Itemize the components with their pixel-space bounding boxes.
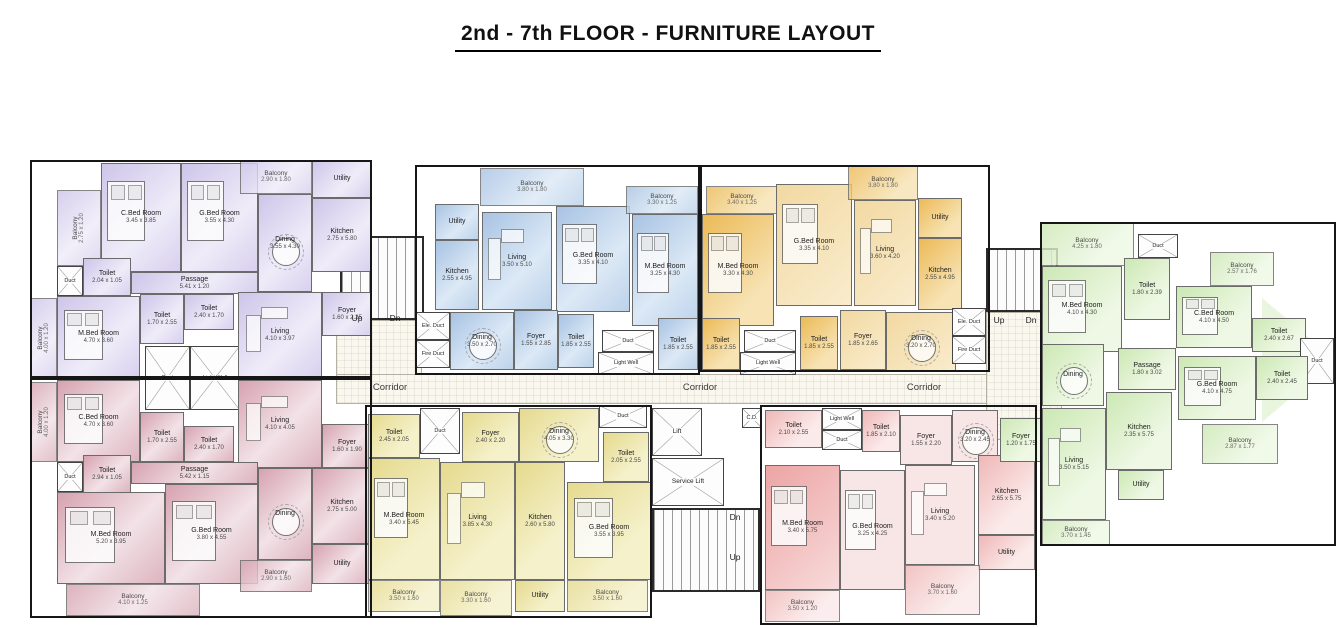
apt-center-blue-toilet: Toilet1.85 x 2.55 [558,314,594,368]
apt-center-orange-duct: Duct [744,330,796,352]
apt-center-orange-dining: Dining3.20 x 2.70 [886,312,956,372]
sofa-icon [488,238,501,280]
apt-center-blue-g-bed-room: G.Bed Room3.35 x 4.10 [556,206,630,312]
apt-center-blue-light-well: Light Well [598,352,654,375]
circulation-up: Up [986,314,1012,328]
apt-center-orange-living: Living3.60 x 4.20 [854,200,916,306]
bed-icon [65,507,115,563]
apt-bottom-pink-foyer: Foyer1.55 x 2.20 [900,415,952,465]
dining-table-icon [546,426,574,454]
sofa-icon [860,228,872,274]
apt-bottom-left-dining: Dining [258,468,312,560]
apt-bottom-left-toilet: Toilet2.40 x 1.70 [184,426,234,462]
bed-icon [708,233,742,293]
apt-bottom-yellow-duct: Duct [599,405,647,428]
apt-right-green-kitchen: Kitchen2.35 x 5.75 [1106,392,1172,470]
apt-top-left-utility: Utility [312,160,372,198]
dining-table-icon [908,334,936,362]
bed-icon [845,490,876,550]
apt-bottom-left-passage: Passage5.42 x 1.15 [131,462,258,484]
dining-table-icon [469,332,497,360]
apt-center-orange-kitchen: Kitchen2.55 x 4.95 [918,238,962,310]
circulation-duct: Duct [145,346,190,410]
dining-table-icon [1060,367,1088,395]
apt-center-blue-kitchen: Kitchen2.55 x 4.95 [435,240,479,310]
apt-top-left-kitchen: Kitchen2.75 x 5.80 [312,198,372,272]
apt-bottom-pink-duct: Duct [822,430,862,450]
apt-center-orange-toilet: Toilet1.85 x 2.55 [702,318,740,370]
apt-top-left-balcony: Balcony2.75 x 1.20 [57,190,101,266]
circulation-light-well: Light Well [190,346,240,410]
apt-top-left-m-bed-room: M.Bed Room4.70 x 3.60 [57,296,140,378]
floor-plan: CorridorCorridorCorridorUpDnUpDnLiftServ… [0,0,1336,628]
sofa-icon [447,493,461,544]
apt-right-green-balcony: Balcony4.25 x 1.80 [1040,222,1134,266]
circulation-corridor: Corridor [886,378,962,398]
bed-icon [1184,367,1221,406]
apt-top-left-balcony: Balcony4.00 x 1.20 [30,298,57,378]
apt-center-orange-fire-duct: Fire Duct [952,336,986,364]
bed-icon [64,310,103,360]
apt-right-green-balcony: Balcony3.70 x 1.45 [1042,520,1110,546]
apt-top-left-toilet: Toilet2.40 x 1.70 [184,294,234,330]
bed-icon [1048,280,1086,332]
apt-bottom-left-c-bed-room: C.Bed Room4.70 x 3.60 [57,380,140,462]
dining-table-icon [272,508,300,536]
sofa-icon [1048,438,1060,486]
apt-bottom-yellow-g-bed-room: G.Bed Room3.55 x 3.95 [567,482,651,580]
apt-top-left-dining: Dining3.55 x 4.30 [258,194,312,292]
apt-bottom-left-duct: Duct [57,462,83,492]
apt-bottom-left-toilet: Toilet2.94 x 1.05 [83,455,131,493]
circulation-corridor: Corridor [352,378,428,398]
page-title: 2nd - 7th FLOOR - FURNITURE LAYOUT [455,22,881,52]
apt-center-blue-duct: Duct [602,330,654,352]
apt-right-green-duct: Duct [1138,234,1178,258]
circulation-up: Up [720,550,750,566]
bed-icon [637,233,668,293]
circulation-lift: Lift [652,408,702,456]
apt-top-left-duct: Duct [57,266,83,296]
apt-right-green-toilet: Toilet2.40 x 2.67 [1252,318,1306,352]
apt-right-green-g-bed-room: G.Bed Room4.10 x 4.75 [1178,356,1256,420]
apt-center-blue-m-bed-room: M.Bed Room3.25 x 4.30 [632,214,698,326]
apt-bottom-yellow-living: Living3.85 x 4.30 [440,462,515,580]
bed-icon [562,224,597,284]
apt-top-left-balcony: Balcony2.90 x 1.80 [240,160,312,194]
apt-bottom-pink-toilet: Toilet2.10 x 2.55 [765,410,822,448]
circulation-up: Up [344,312,370,326]
bed-icon [107,181,145,241]
sofa-icon [911,491,924,534]
apt-bottom-pink-m-bed-room: M.Bed Room3.40 x 5.75 [765,465,840,590]
title-block: 2nd - 7th FLOOR - FURNITURE LAYOUT [0,22,1336,52]
bed-icon [64,394,103,444]
apt-bottom-left-foyer: Foyer1.60 x 1.90 [322,424,372,468]
apt-bottom-pink-living: Living3.40 x 5.20 [905,465,975,565]
apt-center-orange-light-well: Light Well [740,352,796,375]
apt-bottom-pink-light-well: Light Well [822,408,862,430]
circulation-service-lift: Service Lift [652,458,724,506]
apt-bottom-pink-g-bed-room: G.Bed Room3.25 x 4.25 [840,470,905,590]
apt-right-green-passage: Passage1.80 x 3.02 [1118,348,1176,390]
apt-center-blue-dining: Dining3.50 x 2.70 [450,312,514,370]
apt-center-orange-balcony: Balcony3.80 x 1.80 [848,165,918,200]
apt-bottom-pink-toilet: Toilet1.85 x 2.10 [862,410,900,452]
apt-bottom-pink-utility: Utility [978,535,1035,570]
apt-center-blue-fire-duct: Fire Duct [416,340,450,368]
apt-right-green-utility: Utility [1118,470,1164,500]
circulation-dn: Dn [720,510,750,526]
bed-icon [574,498,614,558]
bed-icon [374,478,408,538]
apt-center-blue-balcony: Balcony3.30 x 1.25 [626,186,698,214]
bed-icon [1182,297,1218,335]
apt-bottom-pink-kitchen: Kitchen2.65 x 5.75 [978,455,1035,535]
bed-icon [187,181,224,241]
apt-center-blue-living: Living3.50 x 5.10 [482,212,552,310]
apt-center-orange-foyer: Foyer1.85 x 2.65 [840,310,886,370]
apt-bottom-yellow-balcony: Balcony3.50 x 1.60 [368,580,440,612]
sofa-icon [246,315,261,352]
apt-right-green-balcony: Balcony2.57 x 1.76 [1210,252,1274,286]
apt-bottom-yellow-toilet: Toilet2.45 x 2.05 [368,414,420,458]
circulation-c-d: C.D. [742,408,762,428]
circulation-dn: Dn [1018,314,1044,328]
apt-bottom-yellow-balcony: Balcony3.50 x 1.60 [567,580,648,612]
apt-top-left-passage: Passage5.41 x 1.20 [131,272,258,294]
apt-center-blue-toilet: Toilet1.85 x 2.55 [658,318,698,370]
apt-bottom-left-m-bed-room: M.Bed Room5.20 x 3.95 [57,492,165,584]
bed-icon [782,204,818,264]
apt-right-green-m-bed-room: M.Bed Room4.10 x 4.30 [1042,266,1122,352]
apt-center-blue-foyer: Foyer1.55 x 2.85 [514,310,558,370]
dining-table-icon [272,238,300,266]
apt-bottom-left-balcony: Balcony4.10 x 1.25 [66,584,200,616]
bed-icon [771,486,807,546]
apt-right-green-toilet: Toilet1.80 x 2.39 [1124,258,1170,320]
apt-center-orange-toilet: Toilet1.85 x 2.55 [800,316,838,370]
apt-bottom-yellow-balcony: Balcony3.30 x 1.60 [440,580,512,616]
apt-bottom-yellow-m-bed-room: M.Bed Room3.40 x 5.45 [368,458,440,580]
apt-bottom-left-utility: Utility [312,544,372,584]
apt-bottom-left-living: Living4.10 x 4.05 [238,380,322,468]
apt-bottom-yellow-toilet: Toilet2.05 x 2.55 [603,432,649,482]
bed-icon [172,501,216,561]
apt-center-blue-balcony: Balcony3.80 x 1.80 [480,168,584,206]
apt-center-orange-balcony: Balcony3.40 x 1.25 [706,186,778,214]
apt-bottom-yellow-utility: Utility [515,580,565,612]
apt-right-green-toilet: Toilet2.40 x 2.45 [1256,356,1308,400]
apt-center-orange-utility: Utility [918,198,962,238]
apt-bottom-left-toilet: Toilet1.70 x 2.55 [140,412,184,462]
apt-center-blue-utility: Utility [435,204,479,240]
sofa-icon [246,403,261,441]
apt-top-left-toilet: Toilet2.04 x 1.05 [83,258,131,296]
apt-bottom-pink-balcony: Balcony3.70 x 1.60 [905,565,980,615]
floor-plan-sheet: 2nd - 7th FLOOR - FURNITURE LAYOUT Corri… [0,0,1336,628]
dining-table-icon [962,427,990,455]
apt-bottom-yellow-kitchen: Kitchen2.60 x 5.80 [515,462,565,580]
apt-bottom-left-balcony: Balcony2.90 x 1.60 [240,560,312,592]
apt-top-left-living: Living4.10 x 3.97 [238,292,322,378]
apt-bottom-yellow-duct: Duct [420,408,460,454]
apt-bottom-pink-balcony: Balcony3.50 x 1.20 [765,590,840,622]
apt-bottom-yellow-foyer: Foyer2.40 x 2.20 [462,412,519,462]
apt-right-green-living: Living3.50 x 5.15 [1042,408,1106,520]
apt-top-left-toilet: Toilet1.70 x 2.55 [140,294,184,344]
circulation-corridor: Corridor [662,378,738,398]
apt-right-green-balcony: Balcony2.87 x 1.77 [1202,424,1278,464]
apt-center-orange-ele-duct: Ele. Duct [952,308,986,336]
apt-right-green-c-bed-room: C.Bed Room4.10 x 4.50 [1176,286,1252,348]
apt-center-orange-g-bed-room: G.Bed Room3.35 x 4.10 [776,184,852,306]
apt-bottom-left-balcony: Balcony4.00 x 1.20 [30,382,57,462]
apt-right-green-dining: Dining [1042,344,1104,406]
apt-top-left-c-bed-room: C.Bed Room3.45 x 3.85 [101,163,181,272]
apt-center-blue-ele-duct: Ele. Duct [416,312,450,340]
circulation-dn: Dn [382,312,408,326]
apt-center-orange-m-bed-room: M.Bed Room3.30 x 4.30 [702,214,774,326]
apt-bottom-yellow-dining: Dining4.05 x 3.30 [519,408,599,462]
apt-bottom-left-kitchen: Kitchen2.75 x 5.00 [312,468,372,544]
apt-right-green-foyer: Foyer1.20 x 1.75 [1000,418,1042,462]
